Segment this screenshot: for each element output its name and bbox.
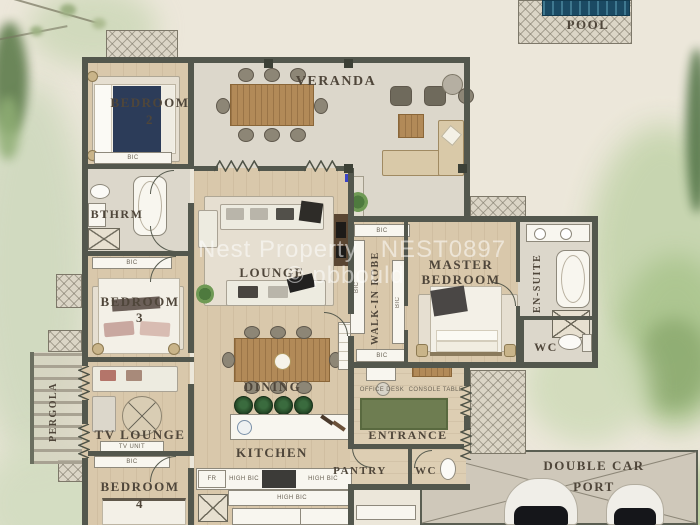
carport-label-line2: PORT: [538, 480, 650, 494]
wc-master-cistern: [582, 334, 592, 352]
veranda-chair-2: [264, 68, 280, 82]
kitchen-stool-2: [254, 396, 273, 415]
veranda-chair-6: [290, 128, 306, 142]
folding-door-entrance-2: [460, 428, 472, 460]
floor-plan-canvas: DOUBLE CAR PORT POOL PERGOLA BIC BIC: [0, 0, 700, 525]
car-1-windshield: [514, 506, 568, 525]
bedroom2-label: BEDROOM: [100, 96, 200, 110]
kitchen-highbic-row2-label: HIGH BIC: [262, 495, 322, 501]
wall-right-outer: [592, 216, 598, 368]
column-4: [458, 164, 467, 173]
wc-master-label: WC: [528, 341, 564, 354]
dining-chair-1: [244, 326, 260, 339]
lounge-cushion-1: [226, 208, 244, 220]
watermark-line1: Nest Property NEST0897: [198, 236, 506, 264]
wall-robe-master-2: [404, 330, 408, 364]
folding-door-veranda-1: [214, 160, 260, 172]
kitchen-stove: [262, 470, 296, 488]
kitchen-label: KITCHEN: [228, 446, 316, 460]
wall-center-divider-2: [188, 203, 194, 353]
dining-chair-7: [222, 352, 235, 368]
folding-door-pergola-1: [78, 366, 90, 400]
dining-chair-3: [296, 326, 312, 339]
bedroom4-label: BEDROOM: [90, 480, 190, 494]
master-pillow-row2: [436, 341, 498, 352]
pool-water: [542, 0, 630, 16]
wall-bedroom3-top: [82, 251, 194, 256]
column-3: [344, 164, 353, 173]
column-1: [264, 59, 273, 68]
kitchen-fridge-label: FR: [198, 476, 226, 482]
kitchen-lower-shelf-2: [300, 508, 352, 525]
pantry-shelf: [356, 505, 416, 520]
bthrm-toilet: [90, 184, 110, 199]
kitchen-highbic-left-label: HIGH BIC: [226, 476, 262, 482]
wall-bedroom4-top: [82, 451, 194, 456]
kitchen-corner-unit: [198, 494, 228, 522]
bedroom3-lamp-left: [92, 343, 104, 355]
pergola-mat-top: [48, 330, 82, 352]
robe-wardrobe-top-label: BIC: [354, 228, 410, 234]
pantry-label: PANTRY: [326, 465, 394, 477]
bedroom3-label: BEDROOM: [90, 295, 190, 309]
dining-centerpiece: [274, 353, 291, 370]
column-2: [344, 59, 353, 68]
watermark-line2: © pbbould: [286, 262, 405, 290]
lounge-cushion-4: [238, 286, 258, 298]
ensuite-tub-basin: [561, 255, 585, 303]
veranda-label: VERANDA: [288, 74, 384, 89]
veranda-armchair-1: [390, 86, 412, 106]
tv-unit-label: TV UNIT: [100, 444, 164, 450]
ensuite-label: EN-SUITE: [532, 250, 550, 316]
master-throw: [430, 286, 468, 317]
wall-master-top: [348, 216, 598, 222]
veranda-chair-5: [264, 128, 280, 142]
side-mat-bedroom3: [56, 274, 82, 308]
veranda-table: [230, 84, 314, 126]
lounge-cushion-5: [268, 286, 288, 298]
ensuite-tub: [556, 250, 590, 308]
kitchen-stool-1: [234, 396, 253, 415]
master-pillow-row1: [436, 330, 498, 341]
wall-veranda-right: [464, 57, 470, 222]
wall-bedroom3-bottom: [82, 357, 194, 362]
bedroom3-lamp-right: [168, 343, 180, 355]
entry-path: [470, 370, 526, 454]
bedroom3-number: 3: [90, 311, 190, 325]
wall-kitchen-right: [348, 486, 354, 525]
veranda-chair-4: [238, 128, 254, 142]
kitchen-stool-4: [294, 396, 313, 415]
leaf-dot-3: [30, 26, 43, 36]
office-desk: [366, 366, 396, 381]
wall-top-main: [82, 57, 470, 63]
leaf-dot-1: [60, 4, 76, 16]
wall-ensuite-wc: [520, 316, 598, 320]
lounge-throw-black: [299, 201, 324, 224]
lounge-cushion-3: [276, 208, 294, 220]
folding-door-entrance-1: [460, 385, 472, 417]
master-nightstand-right: [504, 344, 516, 357]
bedroom2-lamp-top: [87, 71, 98, 82]
bthrm-shower: [88, 228, 120, 250]
wall-lounge-robe-2: [348, 336, 354, 446]
car-2-windshield: [614, 508, 656, 525]
bedroom2-number: 2: [100, 113, 200, 127]
tv-lounge-cushion-2: [126, 370, 142, 381]
kitchen-island-sink: [237, 420, 252, 435]
veranda-chair-1: [238, 68, 254, 82]
wc-guest-label: WC: [408, 465, 444, 477]
leaf-dot-2: [92, 18, 106, 29]
folding-door-veranda-2: [304, 160, 338, 172]
entrance-label: ENTRANCE: [366, 429, 450, 442]
bedroom4-number: 4: [90, 497, 190, 511]
veranda-chair-7: [216, 98, 230, 114]
veranda-coffee-table: [398, 114, 424, 138]
veranda-chair-8: [314, 98, 328, 114]
wall-master-bottom: [348, 362, 598, 368]
console-table-label: CONSOLE TABLE: [406, 387, 466, 393]
ensuite-sink-1: [534, 228, 546, 240]
wall-bthrm-top: [82, 164, 194, 169]
master-nightstand-left: [416, 344, 428, 357]
master-label-line2: BEDROOM: [405, 273, 517, 287]
dining-label: DINING: [230, 380, 315, 394]
dining-chair-2: [270, 326, 286, 339]
ensuite-sink-2: [560, 228, 572, 240]
tv-lounge-cushion-1: [100, 370, 116, 381]
carport-label-line1: DOUBLE CAR: [538, 459, 650, 473]
tv-lounge-label: TV LOUNGE: [88, 428, 192, 442]
master-headboard: [430, 352, 502, 356]
bedroom2-entry-mat: [106, 30, 178, 60]
pergola-label: PERGOLA: [48, 372, 66, 452]
bthrm-label: BTHRM: [77, 208, 157, 221]
entrance-rug: [360, 398, 448, 430]
kitchen-stool-3: [274, 396, 293, 415]
wall-wc-left: [520, 316, 524, 366]
bedroom2-wardrobe-label: BIC: [94, 155, 172, 161]
wall-veranda-lounge-2: [258, 166, 306, 171]
lounge-plant: [196, 284, 214, 304]
pool-label: POOL: [546, 18, 630, 32]
lounge-cushion-2: [250, 208, 268, 220]
office-desk-label: OFFICE DESK: [352, 387, 412, 393]
